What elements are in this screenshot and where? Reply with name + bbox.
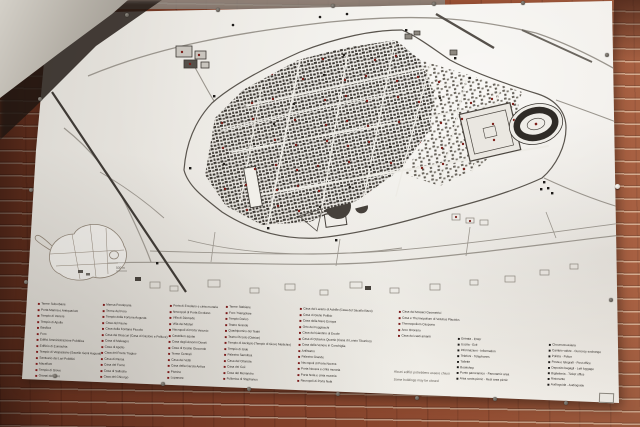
red-square-bullet-icon — [225, 342, 227, 344]
screw-icon — [432, 2, 436, 6]
red-square-bullet-icon — [37, 339, 39, 341]
black-square-bullet-icon — [457, 361, 459, 363]
red-square-bullet-icon — [100, 370, 102, 372]
screw-icon — [336, 392, 340, 396]
red-square-bullet-icon — [399, 311, 401, 313]
red-square-bullet-icon — [398, 323, 400, 325]
red-square-bullet-icon — [299, 332, 301, 334]
black-square-bullet-icon — [457, 372, 459, 374]
red-square-bullet-icon — [226, 306, 228, 308]
red-square-bullet-icon — [298, 356, 300, 358]
legend-item-label: Audioguida - Audioguide — [551, 382, 584, 389]
screw-icon — [161, 382, 165, 386]
red-square-bullet-icon — [225, 324, 227, 326]
red-square-bullet-icon — [101, 352, 103, 354]
legend-column-visitor-1: Entrata - EnterUscita - ExitInformazioni… — [456, 336, 510, 384]
red-square-bullet-icon — [170, 305, 172, 307]
screw-icon — [38, 97, 42, 101]
legend-column-4: Terme StabianeForo TriangolareTempio Dor… — [223, 304, 292, 384]
legend-item-label: Casa del Chirurgo — [103, 374, 128, 381]
red-square-bullet-icon — [224, 366, 226, 368]
red-square-bullet-icon — [35, 369, 37, 371]
red-square-bullet-icon — [37, 327, 39, 329]
legend-item-label: Area sosta picnic - Rest area picnic — [460, 376, 508, 383]
red-square-bullet-icon — [101, 364, 103, 366]
black-square-bullet-icon — [549, 350, 551, 352]
red-square-bullet-icon — [225, 330, 227, 332]
red-square-bullet-icon — [35, 375, 37, 377]
red-square-bullet-icon — [299, 338, 301, 340]
red-square-bullet-icon — [101, 358, 103, 360]
legend-column-2: Mensa PonderariaTerme del ForoTempio del… — [100, 302, 169, 382]
legend-item-label: Casa dei casti amanti — [401, 333, 431, 340]
red-square-bullet-icon — [170, 311, 172, 313]
red-square-bullet-icon — [36, 357, 38, 359]
legend-item: Casa dei casti amanti — [398, 333, 459, 341]
screw-icon — [125, 13, 129, 17]
red-square-bullet-icon — [298, 368, 300, 370]
sign-wrapper: 500 m Terme SuburbanePorta Marina e Anti… — [0, 0, 640, 427]
red-square-bullet-icon — [38, 309, 40, 311]
red-square-bullet-icon — [102, 340, 104, 342]
black-square-bullet-icon — [549, 344, 551, 346]
legend-item: Fullonica di Stephanus — [223, 376, 290, 384]
screw-icon — [609, 298, 613, 302]
red-square-bullet-icon — [224, 360, 226, 362]
red-square-bullet-icon — [169, 317, 171, 319]
red-square-bullet-icon — [169, 341, 171, 343]
map-sign-board: 500 m Terme SuburbanePorta Marina e Anti… — [0, 0, 640, 427]
red-square-bullet-icon — [299, 344, 301, 346]
red-square-bullet-icon — [168, 359, 170, 361]
red-square-bullet-icon — [298, 362, 300, 364]
red-square-bullet-icon — [37, 315, 39, 317]
red-square-bullet-icon — [167, 377, 169, 379]
legend-item-label: Necropoli di Porta Nola — [300, 378, 332, 385]
red-square-bullet-icon — [169, 323, 171, 325]
red-square-bullet-icon — [297, 374, 299, 376]
black-square-bullet-icon — [547, 384, 549, 386]
red-square-bullet-icon — [224, 348, 226, 350]
black-square-bullet-icon — [548, 378, 550, 380]
red-square-bullet-icon — [300, 314, 302, 316]
red-square-bullet-icon — [398, 335, 400, 337]
legend-column-3: Porta di Ercolano e cinta murariaNecropo… — [167, 303, 218, 383]
red-square-bullet-icon — [168, 353, 170, 355]
screw-icon — [29, 188, 33, 192]
red-square-bullet-icon — [225, 336, 227, 338]
red-square-bullet-icon — [226, 312, 228, 314]
red-square-bullet-icon — [169, 329, 171, 331]
legend-column-1: Terme SuburbanePorta Marina e Antiquariu… — [35, 301, 103, 381]
legend-item: Granai del Foro — [35, 373, 100, 381]
red-square-bullet-icon — [169, 335, 171, 337]
red-square-bullet-icon — [103, 310, 105, 312]
black-square-bullet-icon — [548, 355, 550, 357]
screw-icon — [53, 374, 57, 378]
black-square-bullet-icon — [548, 367, 550, 369]
screw-icon — [521, 1, 525, 5]
red-square-bullet-icon — [398, 329, 400, 331]
black-square-bullet-icon — [458, 344, 460, 346]
black-square-bullet-icon — [458, 338, 460, 340]
red-square-bullet-icon — [168, 365, 170, 367]
red-square-bullet-icon — [223, 378, 225, 380]
red-square-bullet-icon — [168, 347, 170, 349]
shaded-corner — [614, 0, 640, 62]
red-square-bullet-icon — [223, 372, 225, 374]
red-square-bullet-icon — [100, 376, 102, 378]
corner-tag — [599, 393, 614, 404]
legend-column-6: Casa dei Mosaici GeometriciCasa e Thermo… — [398, 309, 460, 341]
red-square-bullet-icon — [297, 380, 299, 382]
red-square-bullet-icon — [38, 303, 40, 305]
legend-item: Area sosta picnic - Rest area picnic — [456, 376, 509, 384]
wall-anchor-icon — [615, 184, 620, 189]
black-square-bullet-icon — [456, 378, 458, 380]
legend-item-label: Lupanare — [170, 375, 183, 381]
legend-item-label: Fullonica di Stephanus — [226, 376, 257, 383]
screw-icon — [493, 397, 497, 401]
red-square-bullet-icon — [37, 333, 39, 335]
red-square-bullet-icon — [36, 345, 38, 347]
red-square-bullet-icon — [102, 334, 104, 336]
screw-icon — [331, 4, 335, 8]
black-square-bullet-icon — [457, 366, 459, 368]
closure-note: Alcuni edifici potrebbero essere chiusi … — [393, 368, 449, 386]
red-square-bullet-icon — [102, 322, 104, 324]
red-square-bullet-icon — [167, 371, 169, 373]
red-square-bullet-icon — [37, 321, 39, 323]
photo-scene: 500 m Terme SuburbanePorta Marina e Anti… — [0, 0, 640, 427]
red-square-bullet-icon — [300, 308, 302, 310]
screw-icon — [216, 8, 220, 12]
screw-icon — [247, 387, 251, 391]
red-square-bullet-icon — [102, 316, 104, 318]
red-square-bullet-icon — [36, 363, 38, 365]
red-square-bullet-icon — [298, 350, 300, 352]
legend-item: Lupanare — [167, 375, 215, 383]
red-square-bullet-icon — [225, 318, 227, 320]
black-square-bullet-icon — [548, 361, 550, 363]
red-square-bullet-icon — [299, 320, 301, 322]
legend: Terme SuburbanePorta Marina e Antiquariu… — [0, 0, 640, 427]
legend-column-visitor-2: CircumvesuvianaCambio valute - Currency … — [547, 342, 601, 390]
screw-icon — [24, 280, 28, 284]
legend-item: Audioguida - Audioguide — [547, 382, 599, 390]
red-square-bullet-icon — [101, 346, 103, 348]
screw-icon — [415, 396, 419, 400]
red-square-bullet-icon — [36, 351, 38, 353]
screw-icon — [605, 53, 609, 57]
black-square-bullet-icon — [457, 349, 459, 351]
red-square-bullet-icon — [224, 354, 226, 356]
red-square-bullet-icon — [299, 326, 301, 328]
screw-icon — [564, 401, 568, 405]
red-square-bullet-icon — [399, 317, 401, 319]
red-square-bullet-icon — [103, 304, 105, 306]
black-square-bullet-icon — [548, 372, 550, 374]
legend-column-5: Casa del Larario di Achille (Casa del Sa… — [297, 306, 373, 387]
red-square-bullet-icon — [102, 328, 104, 330]
legend-item: Casa del Chirurgo — [100, 374, 166, 382]
black-square-bullet-icon — [457, 355, 459, 357]
